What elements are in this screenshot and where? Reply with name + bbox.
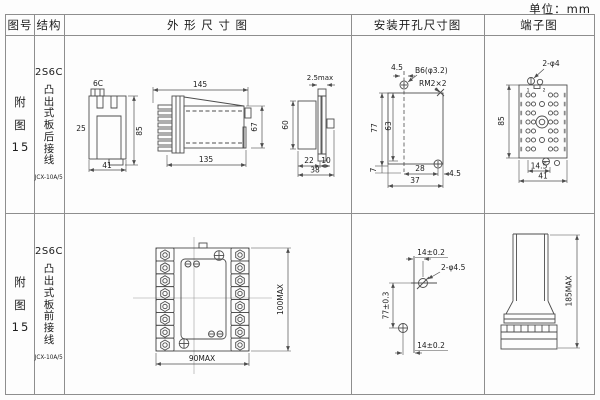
dim-end-height: 60 bbox=[281, 120, 290, 130]
terminal-side-view-front-wiring: 185MAX bbox=[484, 213, 594, 394]
dim-total-height: 185MAX bbox=[565, 275, 574, 306]
install-dims: 4.5 B6(φ3.2) RM2×2 77 63 7 28 4.5 bbox=[369, 63, 461, 188]
dim-end-w1: 22 bbox=[304, 156, 314, 165]
dim-offset-top: 14±0.2 bbox=[417, 248, 445, 257]
model-code: 2S6C bbox=[35, 67, 63, 78]
leader-line bbox=[534, 69, 544, 78]
header-terminal: 端子图 bbox=[484, 15, 594, 35]
socket-dims: 90MAX 100MAX bbox=[156, 248, 291, 366]
screw-spec-label: RM2×2 bbox=[419, 79, 447, 88]
outline-dimension-drawing-front-wiring: 90MAX 100MAX bbox=[64, 213, 351, 394]
side-view bbox=[158, 96, 251, 153]
dim-w-inner: 28 bbox=[415, 164, 425, 173]
structure-description: 凸出式板后接线 bbox=[42, 85, 56, 167]
submodel-code: JCX-10A/5 bbox=[35, 354, 63, 361]
terminal-diagram-rear-wiring: 2-φ4 bbox=[484, 39, 594, 213]
header-structure: 结构 bbox=[34, 15, 64, 35]
dim-offset-top: 4.5 bbox=[391, 63, 403, 72]
dim-w-outer: 37 bbox=[410, 176, 420, 185]
socket-front-view bbox=[156, 243, 249, 351]
hole-layout bbox=[399, 256, 438, 353]
dim-end-top: 2.5max bbox=[307, 74, 333, 82]
dim-terminal-height: 85 bbox=[497, 116, 506, 126]
dim-side-bottom: 135 bbox=[199, 155, 214, 164]
dim-h-base: 7 bbox=[369, 167, 378, 172]
dim-offset-bottom: 14±0.2 bbox=[417, 341, 445, 350]
structure-description: 凸出式板前接线 bbox=[42, 264, 56, 346]
dim-terminal-w-outer: 41 bbox=[538, 172, 548, 181]
front-view-dims: 6C 25 85 41 bbox=[76, 79, 144, 172]
relay-on-socket-side-view bbox=[501, 234, 557, 349]
dim-hole-spacing: 77±0.3 bbox=[382, 291, 391, 319]
dim-end-total: 38 bbox=[310, 166, 320, 175]
terminal-grid bbox=[526, 93, 558, 151]
terminal-dims: 85 14.5 41 bbox=[497, 85, 567, 183]
header-install: 安装开孔尺寸图 bbox=[351, 15, 484, 35]
dim-offset-right: 4.5 bbox=[449, 169, 461, 178]
end-view bbox=[298, 89, 334, 161]
fig-char: 图 bbox=[14, 297, 26, 313]
structure-cell: 2S6C 凸出式板前接线 JCX-10A/5 bbox=[34, 213, 64, 394]
fig-char: 图 bbox=[14, 117, 26, 133]
dim-front-height: 85 bbox=[135, 126, 144, 136]
header-divider bbox=[6, 35, 594, 36]
dim-h-outer: 77 bbox=[370, 123, 379, 133]
outline-dimension-drawing-rear-wiring: 6C 25 85 41 bbox=[64, 39, 351, 213]
dim-end-w2: 10 bbox=[321, 156, 331, 165]
dim-front-width: 41 bbox=[102, 161, 112, 170]
fig-char: 附 bbox=[14, 274, 26, 290]
pin-label-1: 1 bbox=[527, 88, 530, 94]
front-view bbox=[89, 89, 126, 165]
model-code: 2S6C bbox=[35, 246, 63, 257]
submodel-code: JCX-10A/5 bbox=[35, 174, 63, 181]
install-hole-drawing-front-wiring: 14±0.2 2-φ4.5 77±0.3 14±0.2 bbox=[351, 213, 484, 394]
install-dims: 14±0.2 2-φ4.5 77±0.3 14±0.2 bbox=[382, 248, 466, 355]
fig-number: 15 bbox=[12, 140, 31, 154]
hole-spec-label: B6(φ3.2) bbox=[415, 66, 448, 75]
dim-side-top: 145 bbox=[193, 80, 208, 89]
fig-number-cell: 附 图 15 bbox=[6, 213, 34, 394]
dim-front-top: 6C bbox=[93, 79, 103, 88]
dim-h-inner: 63 bbox=[384, 121, 393, 131]
fig-char: 附 bbox=[14, 94, 26, 110]
dim-front-left: 25 bbox=[76, 124, 86, 133]
panel-cutout bbox=[388, 81, 444, 168]
side-view-dims: 185MAX bbox=[550, 235, 580, 348]
datasheet-page: 单位：mm 图号 结构 外 形 尺 寸 图 安装开孔尺寸图 端子图 附 图 15… bbox=[0, 0, 600, 400]
structure-cell: 2S6C 凸出式板后接线 JCX-10A/5 bbox=[34, 35, 64, 213]
dim-socket-height: 100MAX bbox=[276, 284, 285, 315]
terminal-columns bbox=[156, 248, 249, 351]
terminal-hole-label: 2-φ4 bbox=[542, 59, 559, 68]
header-fig-no: 图号 bbox=[6, 15, 34, 35]
pin-label-2: 2 bbox=[543, 88, 546, 94]
dim-socket-width: 90MAX bbox=[189, 354, 215, 363]
dim-side-height: 67 bbox=[250, 122, 259, 132]
side-view-dims: 145 135 67 bbox=[153, 80, 265, 167]
fig-number-cell: 附 图 15 bbox=[6, 35, 34, 213]
header-outline: 外 形 尺 寸 图 bbox=[64, 15, 351, 35]
dim-terminal-w-inner: 14.5 bbox=[531, 162, 548, 171]
install-hole-drawing-rear-wiring: 4.5 B6(φ3.2) RM2×2 77 63 7 28 4.5 bbox=[351, 39, 484, 213]
hole-spec-label: 2-φ4.5 bbox=[441, 263, 466, 272]
dimension-table: 图号 结构 外 形 尺 寸 图 安装开孔尺寸图 端子图 附 图 15 2S6C … bbox=[5, 14, 595, 395]
fig-number: 15 bbox=[12, 320, 31, 334]
